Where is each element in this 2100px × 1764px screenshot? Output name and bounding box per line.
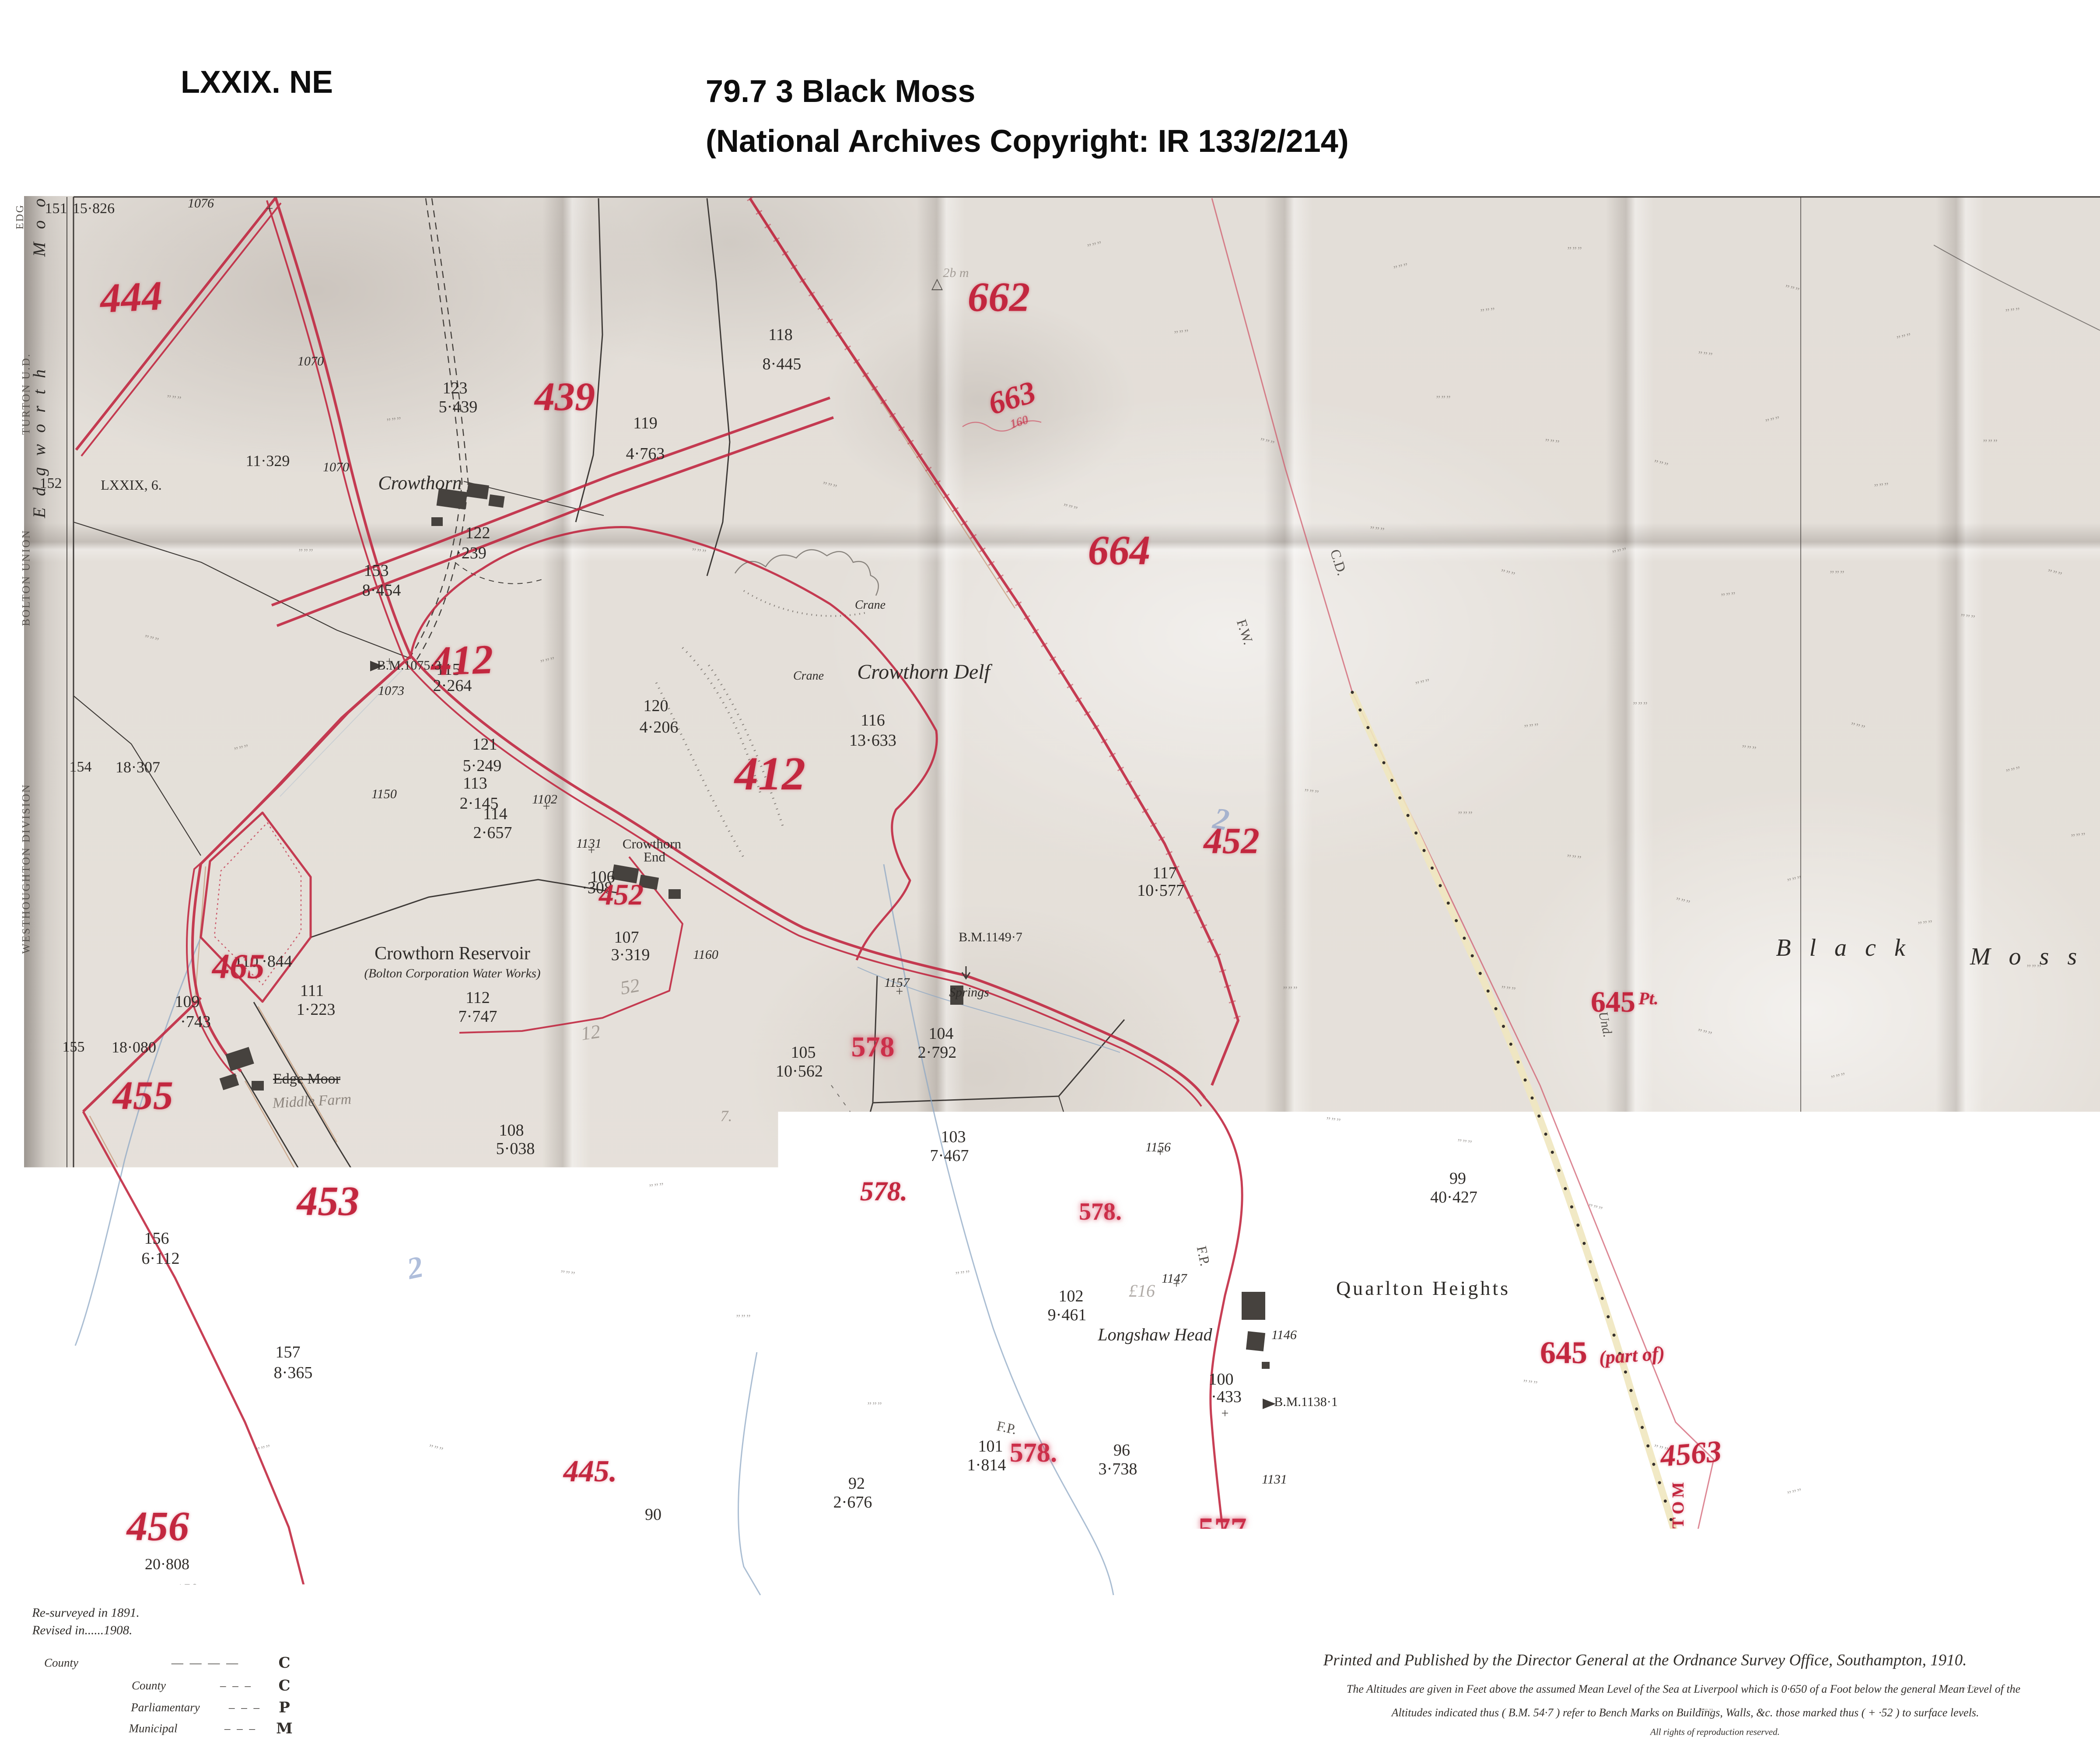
legend-urban-districts: Urban Districts (324, 1679, 398, 1693)
parcel-area: 5·038 (496, 1140, 535, 1157)
parcel-area: 2·657 (473, 824, 512, 841)
parcel-number: 92 (848, 1475, 865, 1492)
parcel-area: ·844 (262, 953, 292, 970)
parcel-number: 94 (946, 1598, 961, 1613)
parcel-number: 117 (1152, 865, 1177, 881)
red-parcel-number: 578 (851, 1033, 895, 1062)
resurveyed-note: Re-surveyed in 1891. (32, 1607, 140, 1620)
legend-triangle-icon: △ (897, 1700, 907, 1715)
legend-parcel-line2: Its area is given underneath in Acres, t… (961, 1673, 1145, 1686)
parcel-area: ·433 (1211, 1389, 1242, 1405)
parcel-number: 90 (645, 1506, 661, 1523)
moor-tuft-icon: „„„ (2026, 957, 2042, 968)
legend-antiquities: Antiquities (Site of ) (652, 1686, 740, 1698)
legend-county-label: County (44, 1656, 78, 1670)
place-name-springs: Springs (949, 986, 989, 999)
boundary-letters: F.P. (1195, 1245, 1213, 1267)
parcel-number: 104 (929, 1025, 954, 1042)
moor-tuft-icon: „„„ (2004, 300, 2021, 313)
road-number: 1146 (1271, 1329, 1297, 1342)
pencil-note: 12 (580, 1022, 602, 1044)
bench-mark-label: B.M.1138·1 (1274, 1396, 1338, 1409)
legend-brace-example: 3or11 (926, 1670, 935, 1689)
parcel-number: 105 (791, 1044, 816, 1061)
trig-station-icon: △ (931, 277, 943, 291)
legend-symbol: — — — – (490, 1679, 552, 1693)
margin-number: 155 (63, 1040, 85, 1055)
moor-tuft-icon: „„„ (1983, 432, 1998, 443)
parcel-number: 93 (883, 1598, 898, 1613)
survey-cross-icon: + (543, 799, 550, 814)
parcel-area: 18·080 (112, 1039, 156, 1055)
parcel-area: ·734 (864, 1573, 890, 1587)
legend-title: CHARACTERISTICS AND SYMBOLS FOR BOUNDARI… (385, 1631, 900, 1645)
moor-tuft-icon: „„„ (1436, 388, 1451, 400)
moor-tuft-icon: „„„ (1917, 1525, 1933, 1538)
legend-letter-c: C (278, 1654, 290, 1672)
bench-mark-label: B.M.1149·7 (959, 931, 1022, 944)
moor-tuft-icon: „„„ (954, 1263, 971, 1276)
imprint-line3: Altitudes indicated thus ( B.M. 54·7 ) r… (1392, 1706, 1979, 1719)
parcel-number: 109 (175, 993, 200, 1010)
footpaths (411, 198, 1211, 1595)
pencil-note: 52 (619, 976, 641, 998)
road-number: 1070 (297, 355, 324, 368)
legend-borough-county: County (132, 1679, 166, 1693)
parcel-area: 26·015 (638, 1526, 685, 1543)
road-number: 1131 (1262, 1473, 1287, 1486)
legend-divider (927, 1651, 928, 1741)
moor-tuft-icon: „„„ (1567, 239, 1582, 251)
moor-tuft-icon: „„„ (1501, 978, 1518, 991)
moor-tuft-icon: „„„ (2005, 1351, 2020, 1362)
parcel-number: 91 (765, 1596, 780, 1611)
parcel-area: 13·633 (849, 732, 896, 749)
place-name-longshaw-head: Longshaw Head (1098, 1326, 1212, 1343)
red-parcel-number: 444 (99, 275, 163, 319)
moor-tuft-icon: „„„ (1633, 694, 1648, 706)
parcel-number: 122 (465, 525, 490, 541)
moor-tuft-icon: „„„ (1435, 1525, 1452, 1538)
legend-letter-p: P (279, 1699, 290, 1716)
parcel-number: 123 (443, 380, 468, 396)
legend-change-line1: Change of Boundary, indicating the point… (656, 1654, 849, 1666)
parcel-area: 40·427 (1430, 1189, 1477, 1206)
legend-letter-p: P (600, 1699, 612, 1716)
red-parcel-number: 445. (563, 1456, 617, 1487)
legend-county-symbol: — — — — (171, 1656, 240, 1670)
parcel-area: ·743 (180, 1014, 211, 1030)
legend-symbol: – – – (224, 1722, 257, 1736)
survey-cross-icon: + (266, 201, 273, 216)
boundary-letters: F.P. (995, 1419, 1018, 1437)
legend-braces-line1: Braces indicating that the spaces so con… (949, 1692, 1162, 1704)
place-name-edge-moor: Edge Moor (273, 1072, 340, 1087)
adjacent-sheet-ref: LXXIX. II. (1501, 1616, 1578, 1629)
adjacent-sheet-ref: LXXIX, 6. (101, 478, 162, 492)
red-parcel-number: 578. (860, 1178, 908, 1205)
parcel-number: 98 (1318, 1602, 1333, 1617)
buildings (220, 483, 1270, 1369)
moor-tuft-icon: „„„ (1960, 1678, 1977, 1691)
red-parcel-number: 456 (127, 1506, 189, 1547)
legend-divider (927, 1720, 1245, 1721)
parcel-area: 10·562 (776, 1063, 823, 1080)
parcel-number: 96 (1113, 1442, 1130, 1459)
parcel-number: 113 (463, 775, 487, 792)
parcel-area: 18·307 (115, 759, 160, 775)
legend-borough-municipal: Municipal (129, 1722, 178, 1736)
parcel-area: 8·445 (763, 356, 801, 372)
moor-tuft-icon: „„„ (1545, 431, 1561, 444)
legend-braces-line2: included in the same reference number an… (951, 1706, 1153, 1718)
legend-letter-c: C (278, 1677, 290, 1694)
thin-red-boundary (962, 198, 1714, 1645)
parcel-number: 121 (472, 736, 497, 753)
moor-tuft-icon: „„„ (1458, 804, 1473, 815)
parcel-area: 3·319 (611, 947, 650, 963)
parcel-area: 15·826 (73, 201, 115, 216)
parcel-area: 20·808 (145, 1556, 189, 1572)
moor-tuft-icon: „„„ (1326, 1109, 1343, 1122)
imprint-line2: The Altitudes are given in Feet above th… (1347, 1683, 2020, 1696)
red-parcel-number: 578. (1010, 1439, 1057, 1466)
margin-label-bolton-union: BOLTON UNION (21, 529, 32, 626)
legend-symbol: ✗ · · · · · · ✗ · (479, 1723, 567, 1734)
parcel-boundaries (67, 197, 2100, 1764)
legend-letter-w: W (598, 1654, 614, 1672)
legend-symbol: – – – (229, 1701, 261, 1715)
quarry-stipple (656, 550, 878, 858)
parcel-area: 1·934 (1215, 1577, 1248, 1591)
parcel-number: 103 (941, 1129, 966, 1145)
legend-letter-u: U (895, 1718, 909, 1737)
place-name-crane: Crane (855, 599, 885, 611)
parcel-area: 2·676 (833, 1494, 872, 1511)
moor-tuft-icon: „„„ (385, 409, 402, 422)
margin-number: 151 (45, 201, 67, 216)
margin-number: 158 (176, 1582, 199, 1597)
parcel-number: 112 (465, 989, 490, 1006)
parcel-area: 6·112 (141, 1250, 179, 1267)
parcel-area: 3·572 (1300, 1580, 1333, 1594)
margin-number: 154 (70, 760, 92, 775)
road-number: 1150 (371, 788, 397, 801)
red-parcel-number: 664 (1088, 530, 1151, 572)
red-parcel-suffix: Pt. (1638, 990, 1659, 1007)
legend-fort: Fort (889, 1685, 916, 1699)
legend-change-line2: which the character of a Boundary change… (654, 1668, 846, 1680)
parcel-area: 7·747 (458, 1008, 497, 1025)
parcel-area: 2·792 (918, 1044, 957, 1061)
legend-trig-station: Trigonometrical Station (652, 1701, 757, 1714)
moor-tuft-icon: „„„ (692, 540, 708, 554)
parcel-area: 1·814 (967, 1457, 1006, 1473)
moor-tuft-icon: „„„ (1698, 1701, 1714, 1712)
moor-tuft-icon: „„„ (560, 1263, 577, 1276)
moor-tuft-icon: „„„ (1698, 344, 1715, 357)
moor-tuft-icon: „„„ (1523, 1372, 1540, 1385)
moor-tuft-icon: „„„ (2070, 825, 2086, 838)
parcel-area: 8·454 (362, 582, 401, 599)
red-parcel-number: 577 (1198, 1513, 1247, 1546)
legend-parcel-line1: Every parcel is numbered thus (983, 1655, 1116, 1667)
parish-boundary-dotted (1352, 692, 1700, 1764)
parcel-number: 107 (614, 929, 639, 946)
red-parcel-number: 578. (1079, 1199, 1122, 1224)
road-number: 1073 (378, 684, 404, 698)
map-linework (0, 0, 2100, 1764)
moor-tuft-icon: „„„ (1283, 979, 1298, 990)
parcel-number: 120 (644, 698, 668, 714)
revised-note: Revised in......1908. (32, 1624, 133, 1637)
legend-symbol: · – — – · (487, 1656, 546, 1670)
parcel-number: 102 (1059, 1288, 1084, 1305)
pencil-note: 2b m (943, 267, 969, 280)
legend-letter-m: M (276, 1720, 293, 1737)
antiquities-cross-icon: ✛ (778, 1685, 788, 1698)
legend-rural-districts: Rural Districts (324, 1722, 395, 1736)
place-name-black-moss: Black (1776, 936, 1923, 960)
moor-tuft-icon: „„„ (1917, 912, 1933, 926)
moor-tuft-icon: „„„ (2026, 1592, 2042, 1603)
legend-divider (297, 1651, 299, 1741)
moor-tuft-icon: „„„ (1457, 1131, 1474, 1144)
moor-tuft-icon: „„„ (1960, 1109, 1977, 1122)
imprint-line1: Printed and Published by the Director Ge… (1323, 1651, 1967, 1670)
survey-cross-icon: + (1173, 1277, 1180, 1291)
red-parcel-number: 452 (599, 880, 644, 909)
red-parcel-number: 453 (297, 1181, 360, 1222)
legend-letter-r: R (600, 1720, 612, 1737)
parcel-area: 11·329 (246, 453, 290, 469)
moor-tuft-icon: „„„ (648, 1175, 665, 1188)
red-parcel-number: 662 (968, 277, 1030, 318)
survey-cross-icon: + (1221, 1406, 1229, 1421)
parcel-area: 4·763 (626, 445, 665, 462)
moor-tuft-icon: „„„ (867, 1395, 882, 1406)
moor-tuft-icon: „„„ (1873, 475, 1890, 488)
parcel-area: 5·439 (439, 399, 478, 415)
map-sheet-photo: LXXIX. NE 79.7 3 Black Moss (National Ar… (0, 0, 2100, 1764)
parcel-area: 8·365 (274, 1364, 313, 1381)
road-number: 1076 (188, 197, 214, 210)
pencil-note: £16 (1129, 1282, 1155, 1300)
moor-tuft-icon: „„„ (1479, 300, 1496, 313)
moor-tuft-icon: „„„ (2048, 1176, 2064, 1187)
parcel-area: 408 (750, 1571, 771, 1585)
moor-tuft-icon: „„„ (1873, 1284, 1890, 1298)
parcel-number: 157 (276, 1344, 301, 1361)
red-parcel-number: 455 (113, 1075, 173, 1115)
margin-label-edgworth: E d g w o r t h (31, 366, 48, 518)
red-parcel-number: 645 (1540, 1337, 1587, 1368)
road-number: 1070 (323, 461, 349, 474)
moor-tuft-icon: „„„ (1523, 715, 1540, 729)
legend-note: For other information see Characteristic… (977, 1723, 1194, 1736)
parcel-number: 153 (364, 562, 389, 579)
pencil-note: 7. (721, 1108, 732, 1124)
parcel-number: 119 (633, 415, 658, 431)
moor-tuft-icon: „„„ (298, 541, 314, 553)
legend-symbol: – – – (220, 1679, 252, 1693)
survey-cross-icon: + (896, 984, 903, 999)
parcel-number: 100 (1209, 1371, 1234, 1388)
parcel-number: 118 (768, 326, 793, 343)
red-parcel-number: 439 (535, 376, 595, 417)
place-name-crowthorn-delf: Crowthorn Delf (857, 662, 990, 683)
parcel-area: 5·249 (463, 758, 502, 774)
legend-symbol: ✗ · · · · · · · ✗ · (777, 1722, 868, 1733)
parcel-number: 99 (1449, 1170, 1466, 1187)
legend-municipal-wards: Municipal Wards (323, 1656, 404, 1670)
legend-divider (616, 1651, 617, 1741)
survey-cross-icon: + (386, 654, 393, 669)
parcel-number: 97 (1235, 1599, 1250, 1614)
parcel-area: 4·206 (640, 719, 679, 736)
place-name-crane: Crane (793, 670, 824, 682)
moor-tuft-icon: „„„ (1720, 584, 1736, 597)
red-boundary-lines (76, 198, 1242, 1595)
parcel-number: 108 (499, 1122, 524, 1139)
red-boundary-name: RAMSBOTTOM (1670, 1479, 1687, 1637)
parcel-area: 10·577 (1137, 882, 1184, 899)
legend-divider (1189, 1651, 1190, 1720)
parcel-area: 9·461 (1048, 1307, 1087, 1323)
moor-tuft-icon: „„„ (1742, 737, 1758, 750)
parcel-number: 95 (1064, 1598, 1078, 1613)
parcel-number: 116 (861, 712, 885, 729)
margin-label-edg: EDG (15, 204, 25, 229)
moor-tuft-icon: „„„ (1830, 563, 1845, 575)
red-parcel-number: 412 (735, 750, 805, 798)
legend-boroughs-label: Boroughs (43, 1701, 88, 1715)
parcel-area: 3·288 (1046, 1573, 1078, 1587)
parcel-number: 114 (483, 806, 507, 822)
moor-tuft-icon: „„„ (1173, 322, 1190, 335)
survey-cross-icon: + (1157, 1145, 1164, 1160)
legend-brace: { (99, 1685, 118, 1730)
moor-tuft-icon: „„„ (1567, 847, 1583, 860)
parcel-number: 156 (144, 1230, 169, 1247)
moor-tuft-icon: „„„ (1304, 781, 1321, 794)
legend-parcel-example-number: 27 (1211, 1655, 1222, 1668)
moor-tuft-icon: „„„ (1370, 519, 1386, 532)
red-parcel-number: 465 (212, 949, 265, 984)
parcel-area: ·239 (456, 545, 486, 561)
red-parcel-number: 645 (1591, 987, 1635, 1017)
place-name-crowthorn-end: Crowthorn (623, 837, 681, 851)
parcel-area: 7·467 (930, 1147, 969, 1164)
red-parcel-suffix: (part of) (1598, 1344, 1665, 1368)
place-name-reservoir: Crowthorn Reservoir (374, 944, 530, 963)
legend-poor-law: Poor Law Unions (652, 1722, 730, 1734)
place-name-crowthorn: Crowthorn (378, 473, 462, 493)
place-name-reservoir-sub: (Bolton Corporation Water Works) (364, 968, 540, 980)
imprint-rights: All rights of reproduction reserved. (1650, 1727, 1780, 1738)
legend-symbol: · · · · · · · · (481, 1701, 560, 1715)
parcel-area: 4·633 (925, 1573, 958, 1587)
legend-borough-parliamentary: Parliamentary (131, 1701, 199, 1715)
parcel-number: 111 (300, 982, 324, 999)
moor-tuft-icon: „„„ (1960, 606, 1977, 619)
moor-tuft-icon: „„„ (736, 1307, 751, 1319)
parcel-area: 3·738 (1099, 1461, 1137, 1477)
margin-number: 152 (40, 476, 62, 491)
place-name-quarlton-heights: Quarlton Heights (1336, 1278, 1510, 1298)
legend-letter-d: D (599, 1677, 612, 1694)
parcel-area: 1·223 (297, 1001, 336, 1018)
margin-label-westhoughton: WESTHOUGHTON DIVISION (21, 783, 32, 954)
parcel-number: 101 (978, 1438, 1003, 1455)
legend-civil-parishes: Civil Parishes (324, 1701, 392, 1715)
legend-parcel-example-area: 4·370 (1202, 1673, 1230, 1687)
survey-cross-icon: + (588, 843, 595, 858)
road-number: 1160 (693, 948, 718, 961)
moor-tuft-icon: „„„ (167, 387, 183, 400)
place-name-crowthorn-end: End (644, 850, 665, 864)
